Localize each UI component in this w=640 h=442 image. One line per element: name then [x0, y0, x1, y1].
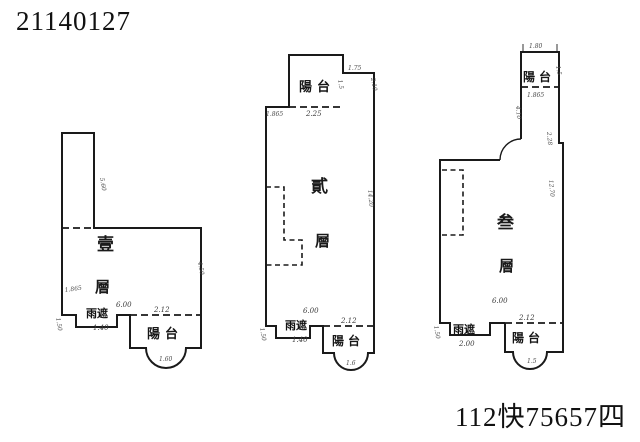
plan2-dim-balcony-side: 1.5	[336, 79, 345, 90]
plan2-dim-balcony: 2.12	[340, 317, 357, 325]
plan2-canopy-label: 雨遮	[285, 318, 307, 332]
plan3-dim-balcony-top-width: 1.80	[529, 43, 543, 50]
plan2-dim-top-left: 1.865	[266, 111, 283, 118]
floor-plan-1: 壹 層 6.00 雨遮 1.40 2.12 陽台 1.60 1.865 5.60…	[54, 133, 205, 368]
plan2-stairwell-dashed-outline	[266, 187, 302, 265]
plan3-floor-char-top: 叁	[496, 212, 515, 233]
plan3-dim-arc: 1.5	[527, 358, 537, 365]
plan3-dim-balcony-top: 1.865	[527, 92, 544, 99]
floor-plan-3: 1.80 陽台 1.5 1.865 4.10 2.28 12.70 叁 層 6.…	[432, 43, 563, 369]
plan2-dim-left-side: 1.50	[258, 327, 267, 342]
floor-plan-2: 陽台 1.5 2.25 1.865 1.75 2.10 貳 層 14.20 6.…	[258, 55, 378, 370]
plan2-bottom-balcony-label: 陽台	[332, 333, 364, 348]
plan3-door-swing-arc	[500, 139, 521, 160]
plan1-dim-strip-inner: 1.865	[64, 285, 82, 294]
plan3-main-room-walls	[440, 160, 505, 335]
plan2-floor-char-top: 貳	[311, 176, 328, 197]
plan1-floor-char-bottom: 層	[95, 278, 110, 296]
plan1-dim-strip-side: 5.60	[98, 177, 107, 192]
plan1-dim-width: 6.00	[116, 301, 132, 309]
plan1-canopy-label: 雨遮	[86, 306, 108, 320]
plan3-floor-char-bottom: 層	[499, 257, 514, 275]
plan2-dim-right-side: 14.20	[366, 190, 374, 208]
plan3-dim-corridor-right: 2.28	[545, 131, 553, 146]
plan2-top-balcony-label: 陽台	[299, 79, 335, 95]
plan2-dim-canopy: 1.40	[292, 336, 308, 344]
plan3-dim-canopy: 2.00	[458, 340, 475, 348]
plan3-canopy-label: 雨遮	[453, 322, 475, 336]
blueprint-sheet: 21140127 壹 層 6.00 雨遮 1.40 2.12 陽台 1.60 1…	[0, 0, 640, 442]
plan3-dim-corridor-left: 4.10	[514, 105, 522, 120]
plan3-dim-balcony: 2.12	[518, 314, 535, 322]
plan3-dim-right-side: 12.70	[547, 180, 555, 198]
plan3-dim-balcony-side: 1.5	[554, 65, 563, 76]
plan1-balcony-label: 陽台	[147, 326, 183, 342]
plan2-dim-top-right: 1.75	[348, 65, 362, 72]
plan3-dim-width: 6.00	[492, 297, 508, 305]
plan3-bottom-balcony-label: 陽台	[512, 330, 544, 345]
plan1-dim-left-side: 1.50	[54, 317, 63, 332]
plan3-stairwell-dashed-outline	[442, 170, 463, 235]
plan2-outline-walls	[266, 55, 374, 370]
plan1-dim-balcony: 2.12	[153, 306, 170, 314]
plan2-dim-balcony-top: 2.25	[305, 110, 322, 118]
plan2-dim-arc: 1.6	[346, 360, 356, 367]
plan3-top-balcony-label: 陽台	[523, 69, 555, 84]
plan2-dim-top-right-side: 2.10	[369, 76, 378, 92]
plan1-dim-arc: 1.60	[159, 356, 173, 363]
plan2-floor-char-bottom: 層	[315, 232, 330, 250]
plan1-dim-right-side: 4.50	[196, 260, 205, 276]
plan1-dim-canopy: 1.40	[93, 324, 109, 332]
plan1-floor-char-top: 壹	[97, 234, 114, 255]
plan2-dim-width: 6.00	[303, 307, 319, 315]
plan3-dim-left-side: 1.50	[432, 325, 441, 340]
document-number-bottom-right: 112快75657四	[455, 395, 626, 434]
floor-plans-drawing: 壹 層 6.00 雨遮 1.40 2.12 陽台 1.60 1.865 5.60…	[0, 0, 640, 442]
